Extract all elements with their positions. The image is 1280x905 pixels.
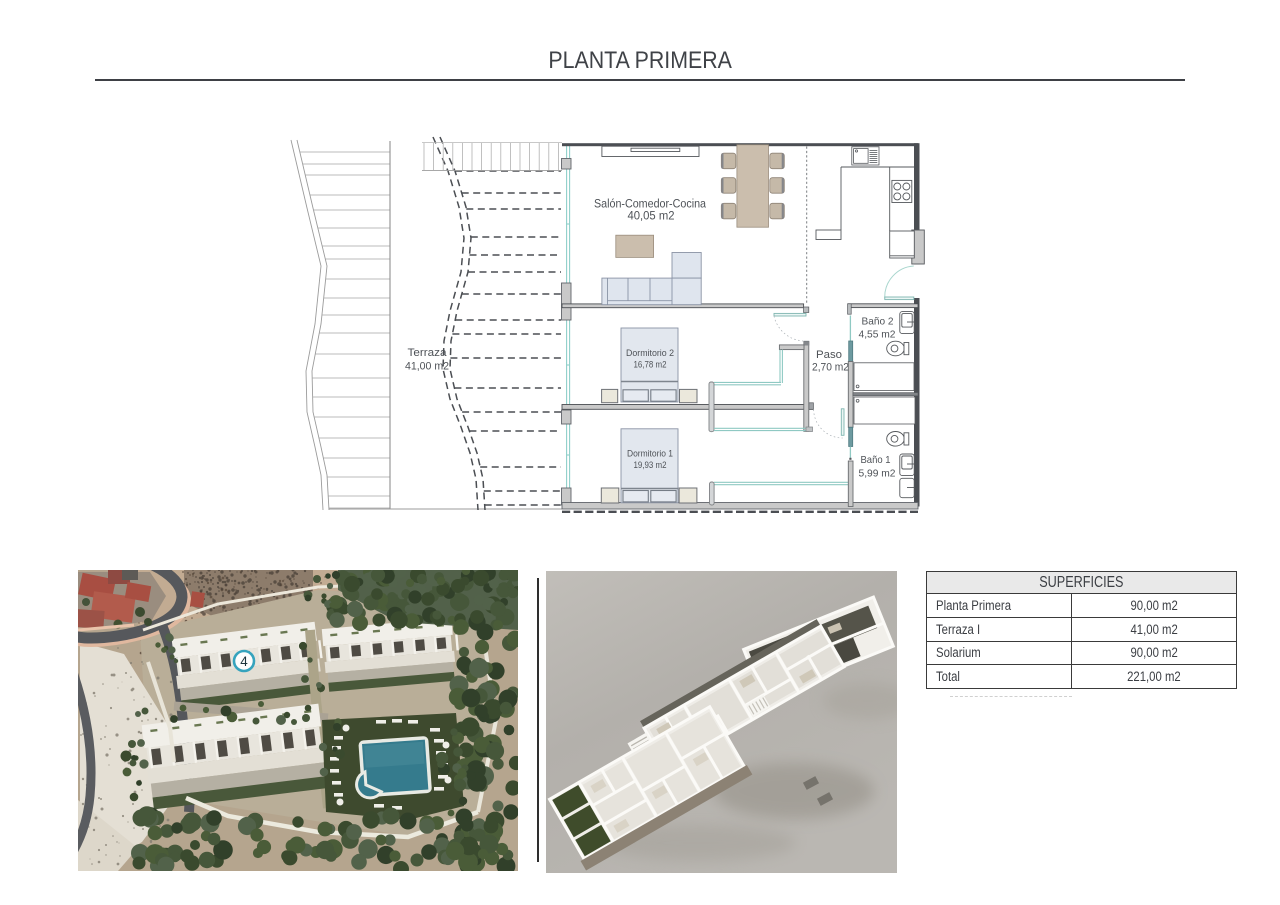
svg-text:Dormitorio 1: Dormitorio 1 <box>627 448 673 459</box>
svg-text:19,93 m2: 19,93 m2 <box>634 459 667 470</box>
svg-text:16,78 m2: 16,78 m2 <box>634 359 667 370</box>
svg-text:40,05 m2: 40,05 m2 <box>628 209 675 223</box>
svg-text:4: 4 <box>240 654 248 669</box>
svg-text:Terraza: Terraza <box>408 347 448 359</box>
svg-text:5,99 m2: 5,99 m2 <box>859 469 896 480</box>
svg-text:4,55 m2: 4,55 m2 <box>859 330 896 341</box>
svg-text:Baño 1: Baño 1 <box>861 455 891 466</box>
svg-text:Dormitorio 2: Dormitorio 2 <box>626 347 674 358</box>
svg-text:2,70 m2: 2,70 m2 <box>812 362 849 374</box>
svg-text:41,00 m2: 41,00 m2 <box>405 361 449 373</box>
svg-text:Paso: Paso <box>816 349 842 361</box>
svg-text:Baño 2: Baño 2 <box>862 317 894 328</box>
